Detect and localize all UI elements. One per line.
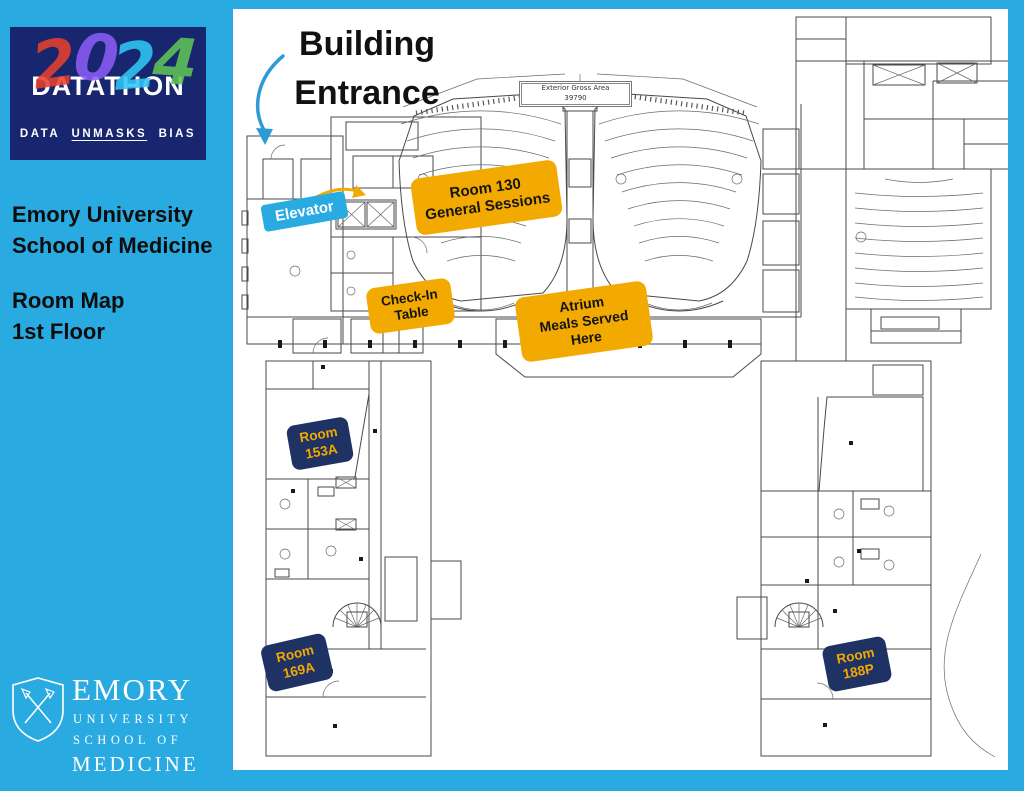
emory-medicine: MEDICINE <box>72 752 199 777</box>
left-wing <box>266 361 461 756</box>
datathon-tagline: DATA UNMASKS BIAS <box>10 128 206 140</box>
auditorium-right <box>593 93 761 311</box>
gross-area-box: Exterior Gross Area 39790 <box>519 81 632 107</box>
year-digit-4: 4 <box>151 30 200 97</box>
side-rooms-right-of-hall <box>763 104 801 317</box>
emory-shield-icon <box>10 676 66 744</box>
organization-title: Emory University School of Medicine <box>12 200 212 262</box>
center-stairs <box>553 83 607 312</box>
emory-name: EMORY <box>72 672 192 708</box>
gross-area-value: 39790 <box>522 94 629 104</box>
org-line-1: Emory University <box>12 200 212 231</box>
floor-plan <box>233 9 1008 770</box>
map-title-line-1: Room Map <box>12 286 124 317</box>
map-title-line-2: 1st Floor <box>12 317 124 348</box>
site-boundary-curve <box>944 554 995 757</box>
flyer-page: DATATHON 2 0 2 4 DATA UNMASKS BIAS Emory… <box>0 0 1024 791</box>
emory-school-of: SCHOOL OF <box>73 733 182 748</box>
emory-university: UNIVERSITY <box>73 712 193 727</box>
gross-area-label: Exterior Gross Area <box>522 84 629 94</box>
upper-right-block <box>796 17 1008 343</box>
map-title: Room Map 1st Floor <box>12 286 124 348</box>
building-entrance-label: Building Entrance <box>262 20 472 119</box>
datathon-logo: DATATHON 2 0 2 4 DATA UNMASKS BIAS <box>10 27 206 160</box>
org-line-2: School of Medicine <box>12 231 212 262</box>
entrance-block <box>242 136 343 344</box>
